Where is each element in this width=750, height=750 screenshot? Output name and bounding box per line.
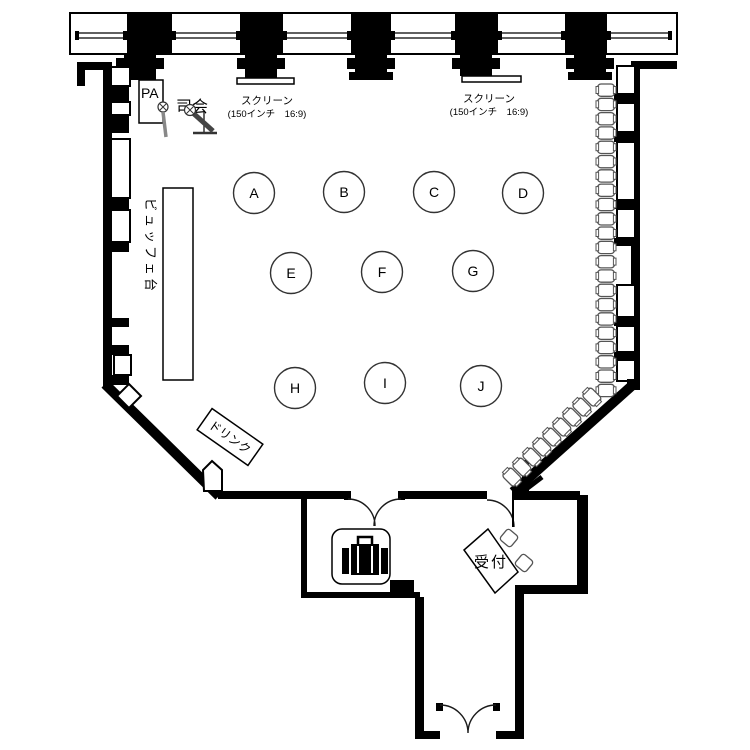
banquet-table-C: C: [414, 172, 455, 213]
stacked-chair: [596, 241, 616, 253]
table-label: G: [468, 263, 479, 279]
banquet-floor-plan: PA 司会 スクリーン (150インチ 16:9) スクリーン (150インチ …: [0, 0, 750, 750]
stacked-chair: [596, 299, 616, 311]
cloak-double-door-arc: [348, 499, 401, 526]
doors: [348, 477, 542, 733]
reception-door-arc: [487, 500, 514, 527]
stacked-chair: [596, 341, 616, 353]
banquet-table-J: J: [461, 366, 502, 407]
reception-desk: 受付: [464, 528, 534, 593]
stacked-chair: [596, 127, 616, 139]
screen-1: [237, 78, 294, 84]
round-tables: ABCDEFGHIJ: [234, 172, 544, 409]
banquet-table-D: D: [503, 173, 544, 214]
stacked-chair: [596, 198, 616, 210]
table-label: J: [478, 378, 485, 394]
stacked-chair: [596, 213, 616, 225]
mc-station: 司会: [176, 98, 217, 133]
screen-2-name: スクリーン: [463, 93, 515, 105]
stacked-chair: [596, 327, 616, 339]
cloak-station: [332, 529, 390, 584]
screen-label-1: スクリーン (150インチ 16:9): [228, 95, 307, 120]
stacked-chair: [596, 370, 616, 382]
table-label: A: [249, 185, 259, 201]
stacked-chair: [596, 113, 616, 125]
banquet-table-F: F: [362, 252, 403, 293]
buffet-label: ビュッフェ台: [143, 198, 158, 294]
stacked-chair: [596, 227, 616, 239]
door-niche-lower: [203, 461, 222, 491]
right-diagonal-wall: [513, 383, 635, 492]
corner-block: [390, 580, 414, 592]
buffet-table: ビュッフェ台: [143, 188, 193, 380]
banquet-table-G: G: [453, 251, 494, 292]
reception-label: 受付: [474, 554, 508, 571]
pa-station: PA: [139, 80, 168, 137]
banquet-table-H: H: [275, 368, 316, 409]
screen-1-name: スクリーン: [241, 95, 293, 107]
banquet-table-B: B: [324, 172, 365, 213]
table-label: B: [339, 184, 348, 200]
reception-chair: [499, 528, 519, 548]
stacked-chair: [596, 98, 616, 110]
stacked-chairs: [500, 84, 616, 489]
stacked-chair: [596, 284, 616, 296]
stacked-chair: [596, 156, 616, 168]
table-label: E: [286, 265, 295, 281]
main-entrance-door-arcs: [440, 705, 496, 733]
stacked-chair: [596, 256, 616, 268]
top-window-band: [70, 12, 677, 84]
table-label: H: [290, 380, 300, 396]
stacked-chair: [596, 141, 616, 153]
screen-2: [462, 76, 521, 82]
banquet-table-E: E: [271, 253, 312, 294]
drink-table: ドリンク: [197, 409, 263, 466]
floor-plan-canvas: PA 司会 スクリーン (150インチ 16:9) スクリーン (150インチ …: [0, 0, 750, 750]
banquet-table-I: I: [365, 363, 406, 404]
stacked-chair: [596, 313, 616, 325]
pa-label: PA: [141, 85, 159, 101]
table-label: F: [378, 264, 387, 280]
stacked-chair: [596, 84, 616, 96]
screen-2-spec: (150インチ 16:9): [450, 107, 529, 118]
banquet-table-A: A: [234, 173, 275, 214]
table-label: I: [383, 375, 387, 391]
stacked-chair: [596, 170, 616, 182]
table-label: C: [429, 184, 439, 200]
screen-1-spec: (150インチ 16:9): [228, 109, 307, 120]
stacked-chair: [596, 270, 616, 282]
stacked-chair: [596, 356, 616, 368]
table-label: D: [518, 185, 528, 201]
screen-label-2: スクリーン (150インチ 16:9): [450, 93, 529, 118]
stacked-chair: [596, 184, 616, 196]
